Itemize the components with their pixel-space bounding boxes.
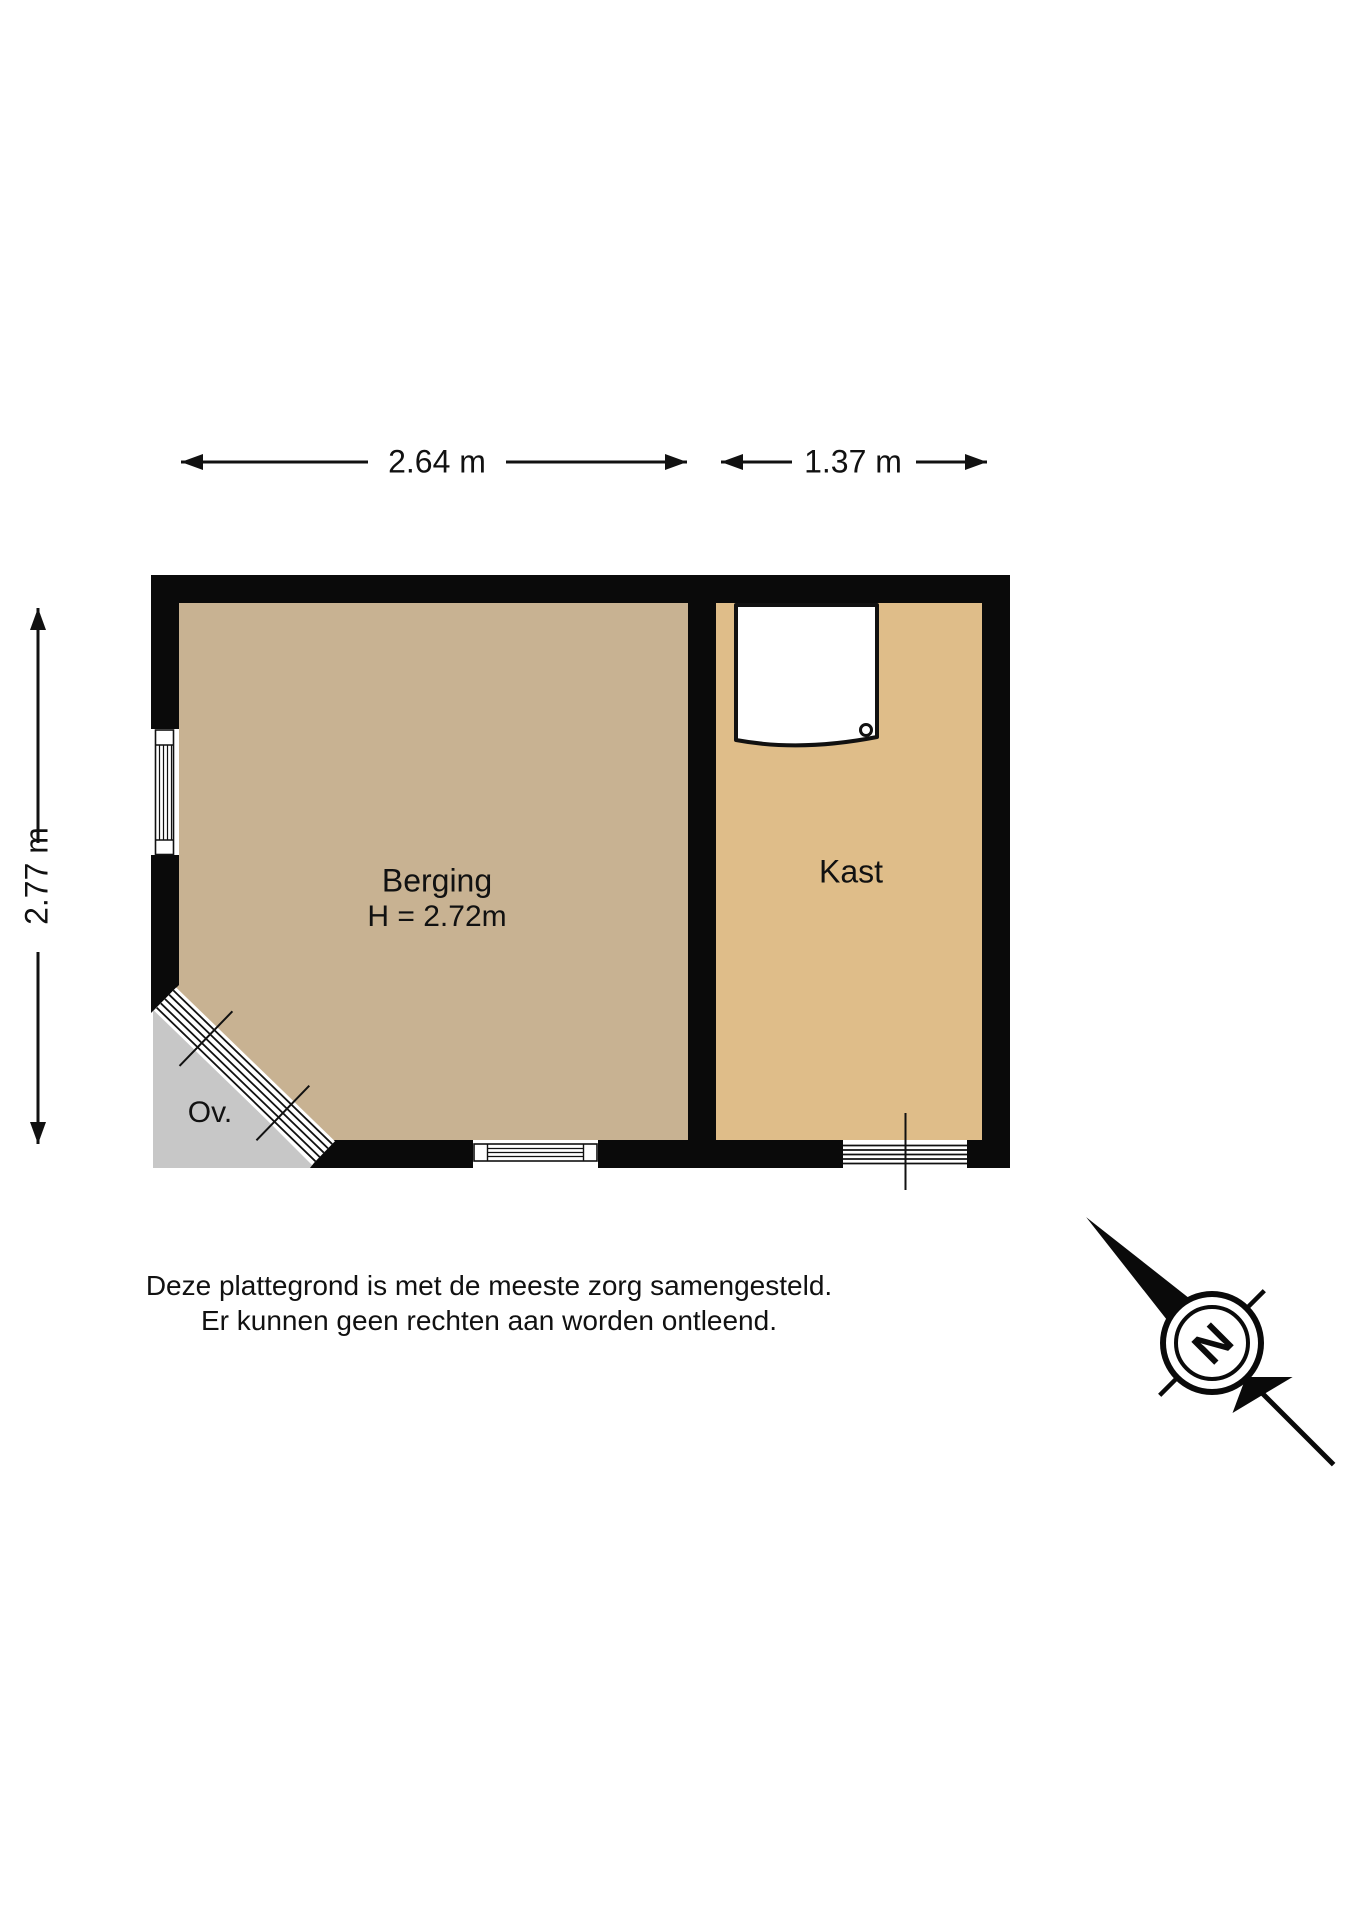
boiler-fixture: [736, 605, 877, 745]
wall-left-upper: [151, 575, 179, 729]
room-label-berging: Berging: [382, 863, 492, 900]
room-label-kast: Kast: [819, 854, 883, 891]
floorplan-canvas: N 2.64 m 1.37 m 2.77 m Berging H = 2.72m…: [0, 0, 1358, 1920]
window-left: [151, 729, 179, 855]
area-label-ov: Ov.: [188, 1096, 232, 1130]
dimension-label-total-depth: 2.77 m: [19, 827, 56, 925]
compass-rose: N: [1034, 1165, 1358, 1517]
dimension-label-kast-width: 1.37 m: [804, 444, 902, 481]
compass-tail-line: [1243, 1374, 1334, 1465]
wall-top: [151, 575, 1010, 603]
disclaimer-line-2: Er kunnen geen rechten aan worden ontlee…: [146, 1303, 832, 1338]
wall-right: [982, 575, 1010, 1168]
boiler-connection-dot: [861, 725, 872, 736]
disclaimer-line-1: Deze plattegrond is met de meeste zorg s…: [146, 1268, 832, 1303]
wall-bottom-right: [967, 1140, 1010, 1168]
floorplan-drawing: N: [0, 0, 1358, 1920]
disclaimer-text: Deze plattegrond is met de meeste zorg s…: [146, 1268, 832, 1338]
dimension-label-berging-width: 2.64 m: [388, 444, 486, 481]
compass-needle: [1075, 1206, 1192, 1323]
wall-bottom-left: [310, 1140, 473, 1168]
window-bottom-berging: [473, 1140, 598, 1168]
wall-divider: [688, 600, 716, 1140]
wall-bottom-middle: [598, 1140, 843, 1168]
window-left-frame: [156, 730, 174, 855]
room-label-berging-height: H = 2.72m: [367, 900, 506, 934]
